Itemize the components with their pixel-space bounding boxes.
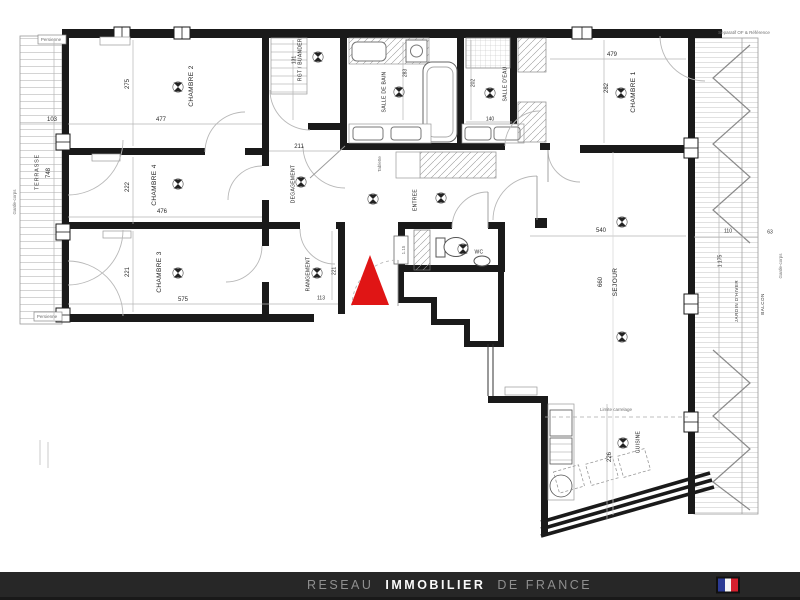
ceiling-light-icon bbox=[618, 438, 628, 448]
plan-label-748: 748 bbox=[46, 168, 52, 178]
plan-label-211: 211 bbox=[294, 144, 304, 150]
plan-label-660: 660 bbox=[598, 277, 604, 287]
plan-label-63: 63 bbox=[767, 231, 773, 236]
plan-label-222: 222 bbox=[125, 182, 131, 192]
fridge bbox=[550, 410, 572, 436]
plan-label-chambre-2: CHAMBRE 2 bbox=[189, 65, 196, 107]
plan-label-s-paratif-of-r-f-rence: Séparatif OF & Référence bbox=[718, 31, 770, 36]
plan-label-282: 282 bbox=[604, 83, 610, 93]
ceiling-light-icon bbox=[394, 87, 404, 97]
plan-label-476: 476 bbox=[157, 209, 167, 215]
plan-label-persienne: Persienne bbox=[41, 38, 61, 43]
brand-main: IMMOBILIER bbox=[385, 578, 485, 592]
entrance-marker bbox=[351, 255, 389, 305]
french-flag-icon bbox=[716, 576, 740, 593]
wc-sink bbox=[474, 256, 490, 266]
plan-label-salle-de-bain: SALLE DE BAIN bbox=[383, 72, 388, 113]
ceiling-light-icon bbox=[313, 52, 323, 62]
radiator bbox=[103, 231, 131, 238]
plan-label-entree: ENTREE bbox=[414, 189, 419, 211]
terrace-area bbox=[20, 36, 62, 324]
wardrobe bbox=[518, 38, 546, 72]
plan-label-chambre-1: CHAMBRE 1 bbox=[631, 71, 638, 113]
plan-label-garde-corps: Garde-corps bbox=[779, 253, 784, 278]
plan-label-110: 110 bbox=[724, 230, 732, 235]
ceiling-light-icon bbox=[436, 193, 446, 203]
plan-label-salle-d-eau: SALLE D'EAU bbox=[504, 66, 509, 101]
plan-label-limite-carrelage: Limite carrelage bbox=[600, 408, 632, 413]
sideboard bbox=[505, 387, 537, 395]
brand-prefix: RESEAU bbox=[307, 578, 373, 592]
shower-tray bbox=[466, 38, 510, 68]
ceiling-light-icon bbox=[616, 88, 626, 98]
plan-label-131: 131 bbox=[293, 56, 298, 64]
plan-label-540: 540 bbox=[596, 228, 606, 234]
plan-label-479: 479 bbox=[607, 52, 617, 58]
agency-brand: RESEAU IMMOBILIER DE FRANCE bbox=[307, 578, 592, 592]
floor-plan-drawing bbox=[0, 0, 800, 600]
plan-label-balcon: BALCON bbox=[761, 293, 766, 315]
plan-label-cuisine: CUISINE bbox=[637, 431, 642, 453]
plan-label-terrasse: TERRASSE bbox=[35, 154, 41, 190]
oven bbox=[550, 438, 572, 464]
plan-label-chambre-4: CHAMBRE 4 bbox=[152, 164, 159, 206]
ceiling-light-icon bbox=[617, 332, 627, 342]
radiator bbox=[92, 154, 120, 161]
plan-label-persienne: Persienne bbox=[37, 315, 57, 320]
plan-label-chambre-3: CHAMBRE 3 bbox=[157, 251, 164, 293]
stair-landing bbox=[396, 152, 420, 178]
plan-label-103: 103 bbox=[47, 117, 57, 123]
ceiling-light-icon bbox=[485, 88, 495, 98]
plan-label-575: 575 bbox=[178, 297, 188, 303]
plan-label-1-15: 1.15 bbox=[402, 246, 407, 255]
plan-label-140: 140 bbox=[486, 118, 494, 123]
fixtures bbox=[34, 35, 688, 500]
plan-label-221: 221 bbox=[125, 267, 131, 277]
plan-label-garde-corps: Garde-corps bbox=[13, 189, 18, 214]
plan-label-202: 202 bbox=[472, 79, 477, 87]
plan-label-226: 226 bbox=[607, 452, 613, 462]
ceiling-light-icon bbox=[173, 82, 183, 92]
ceiling-light-icon bbox=[296, 177, 306, 187]
brand-suffix: DE FRANCE bbox=[497, 578, 592, 592]
plan-label-sejour: SEJOUR bbox=[613, 268, 620, 297]
flag-red-stripe bbox=[731, 578, 738, 591]
dimension-lines bbox=[20, 40, 758, 520]
footer-bar: RESEAU IMMOBILIER DE FRANCE bbox=[0, 572, 800, 600]
ceiling-light-icon bbox=[617, 217, 627, 227]
plan-label-477: 477 bbox=[156, 117, 166, 123]
floor-plan: CHAMBRE 2CHAMBRE 4CHAMBRE 3CHAMBRE 1RGT … bbox=[0, 0, 800, 600]
plan-label-degagement: DEGAGEMENT bbox=[292, 165, 297, 204]
plan-label-1-175: 1 175 bbox=[719, 255, 724, 268]
plan-label-rangement: RANGEMENT bbox=[307, 257, 312, 292]
flag-blue-stripe bbox=[718, 578, 725, 591]
ceiling-light-icon bbox=[368, 194, 378, 204]
radiator bbox=[100, 37, 130, 45]
ceiling-light-icon bbox=[173, 268, 183, 278]
plan-label-113: 113 bbox=[317, 297, 325, 302]
plan-label-221: 221 bbox=[333, 267, 338, 275]
washbasin bbox=[352, 42, 386, 61]
stepped-wall bbox=[401, 272, 501, 344]
ceiling-light-icon bbox=[173, 179, 183, 189]
plan-label-283: 283 bbox=[404, 69, 409, 77]
kitchen-sink bbox=[550, 475, 572, 497]
plan-label-jardin-d-hiver: JARDIN D'HIVER bbox=[735, 280, 740, 322]
plan-label-wc: WC bbox=[475, 251, 484, 256]
real-estate-floorplan-page: CHAMBRE 2CHAMBRE 4CHAMBRE 3CHAMBRE 1RGT … bbox=[0, 0, 800, 600]
washing-machine bbox=[406, 40, 427, 62]
wardrobe bbox=[518, 102, 546, 142]
stairs bbox=[420, 152, 496, 178]
plan-label-rgt-buanderie: RGT / BUANDERIE bbox=[299, 33, 304, 81]
ceiling-light-icon bbox=[312, 268, 322, 278]
plan-label-275: 275 bbox=[125, 79, 131, 89]
plan-label-tablette: Tablette bbox=[378, 156, 383, 172]
technical-duct bbox=[414, 230, 430, 270]
